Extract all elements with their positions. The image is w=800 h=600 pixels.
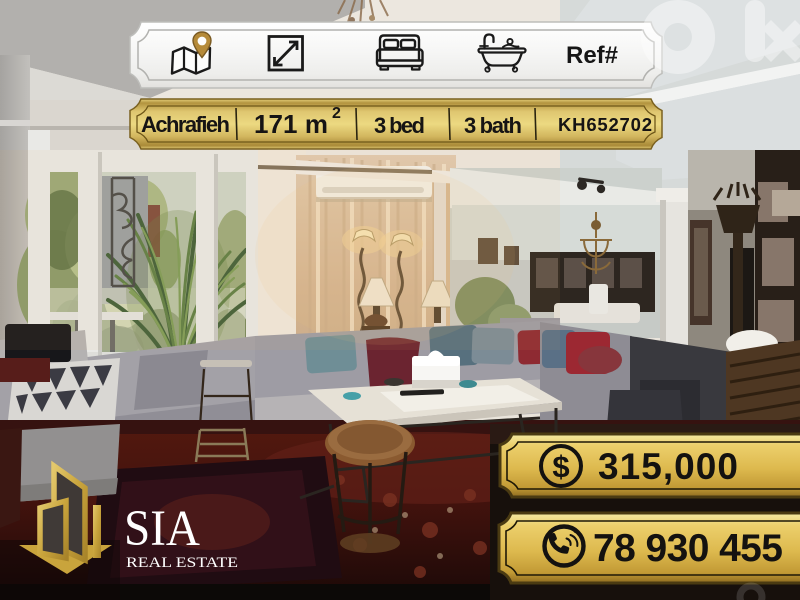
svg-text:3 bath: 3 bath [464,113,522,138]
svg-text:REAL ESTATE: REAL ESTATE [126,555,238,571]
svg-text:3 bed: 3 bed [374,113,425,138]
svg-text:SIA: SIA [124,501,200,557]
svg-text:171 m: 171 m [254,109,328,139]
svg-text:Achrafieh: Achrafieh [141,112,230,137]
svg-text:$: $ [552,449,569,484]
svg-text:315,000: 315,000 [598,446,738,487]
svg-text:78 930 455: 78 930 455 [593,527,783,570]
svg-text:KH652702: KH652702 [558,114,652,135]
svg-text:2: 2 [332,105,341,122]
svg-text:Ref#: Ref# [566,42,618,69]
